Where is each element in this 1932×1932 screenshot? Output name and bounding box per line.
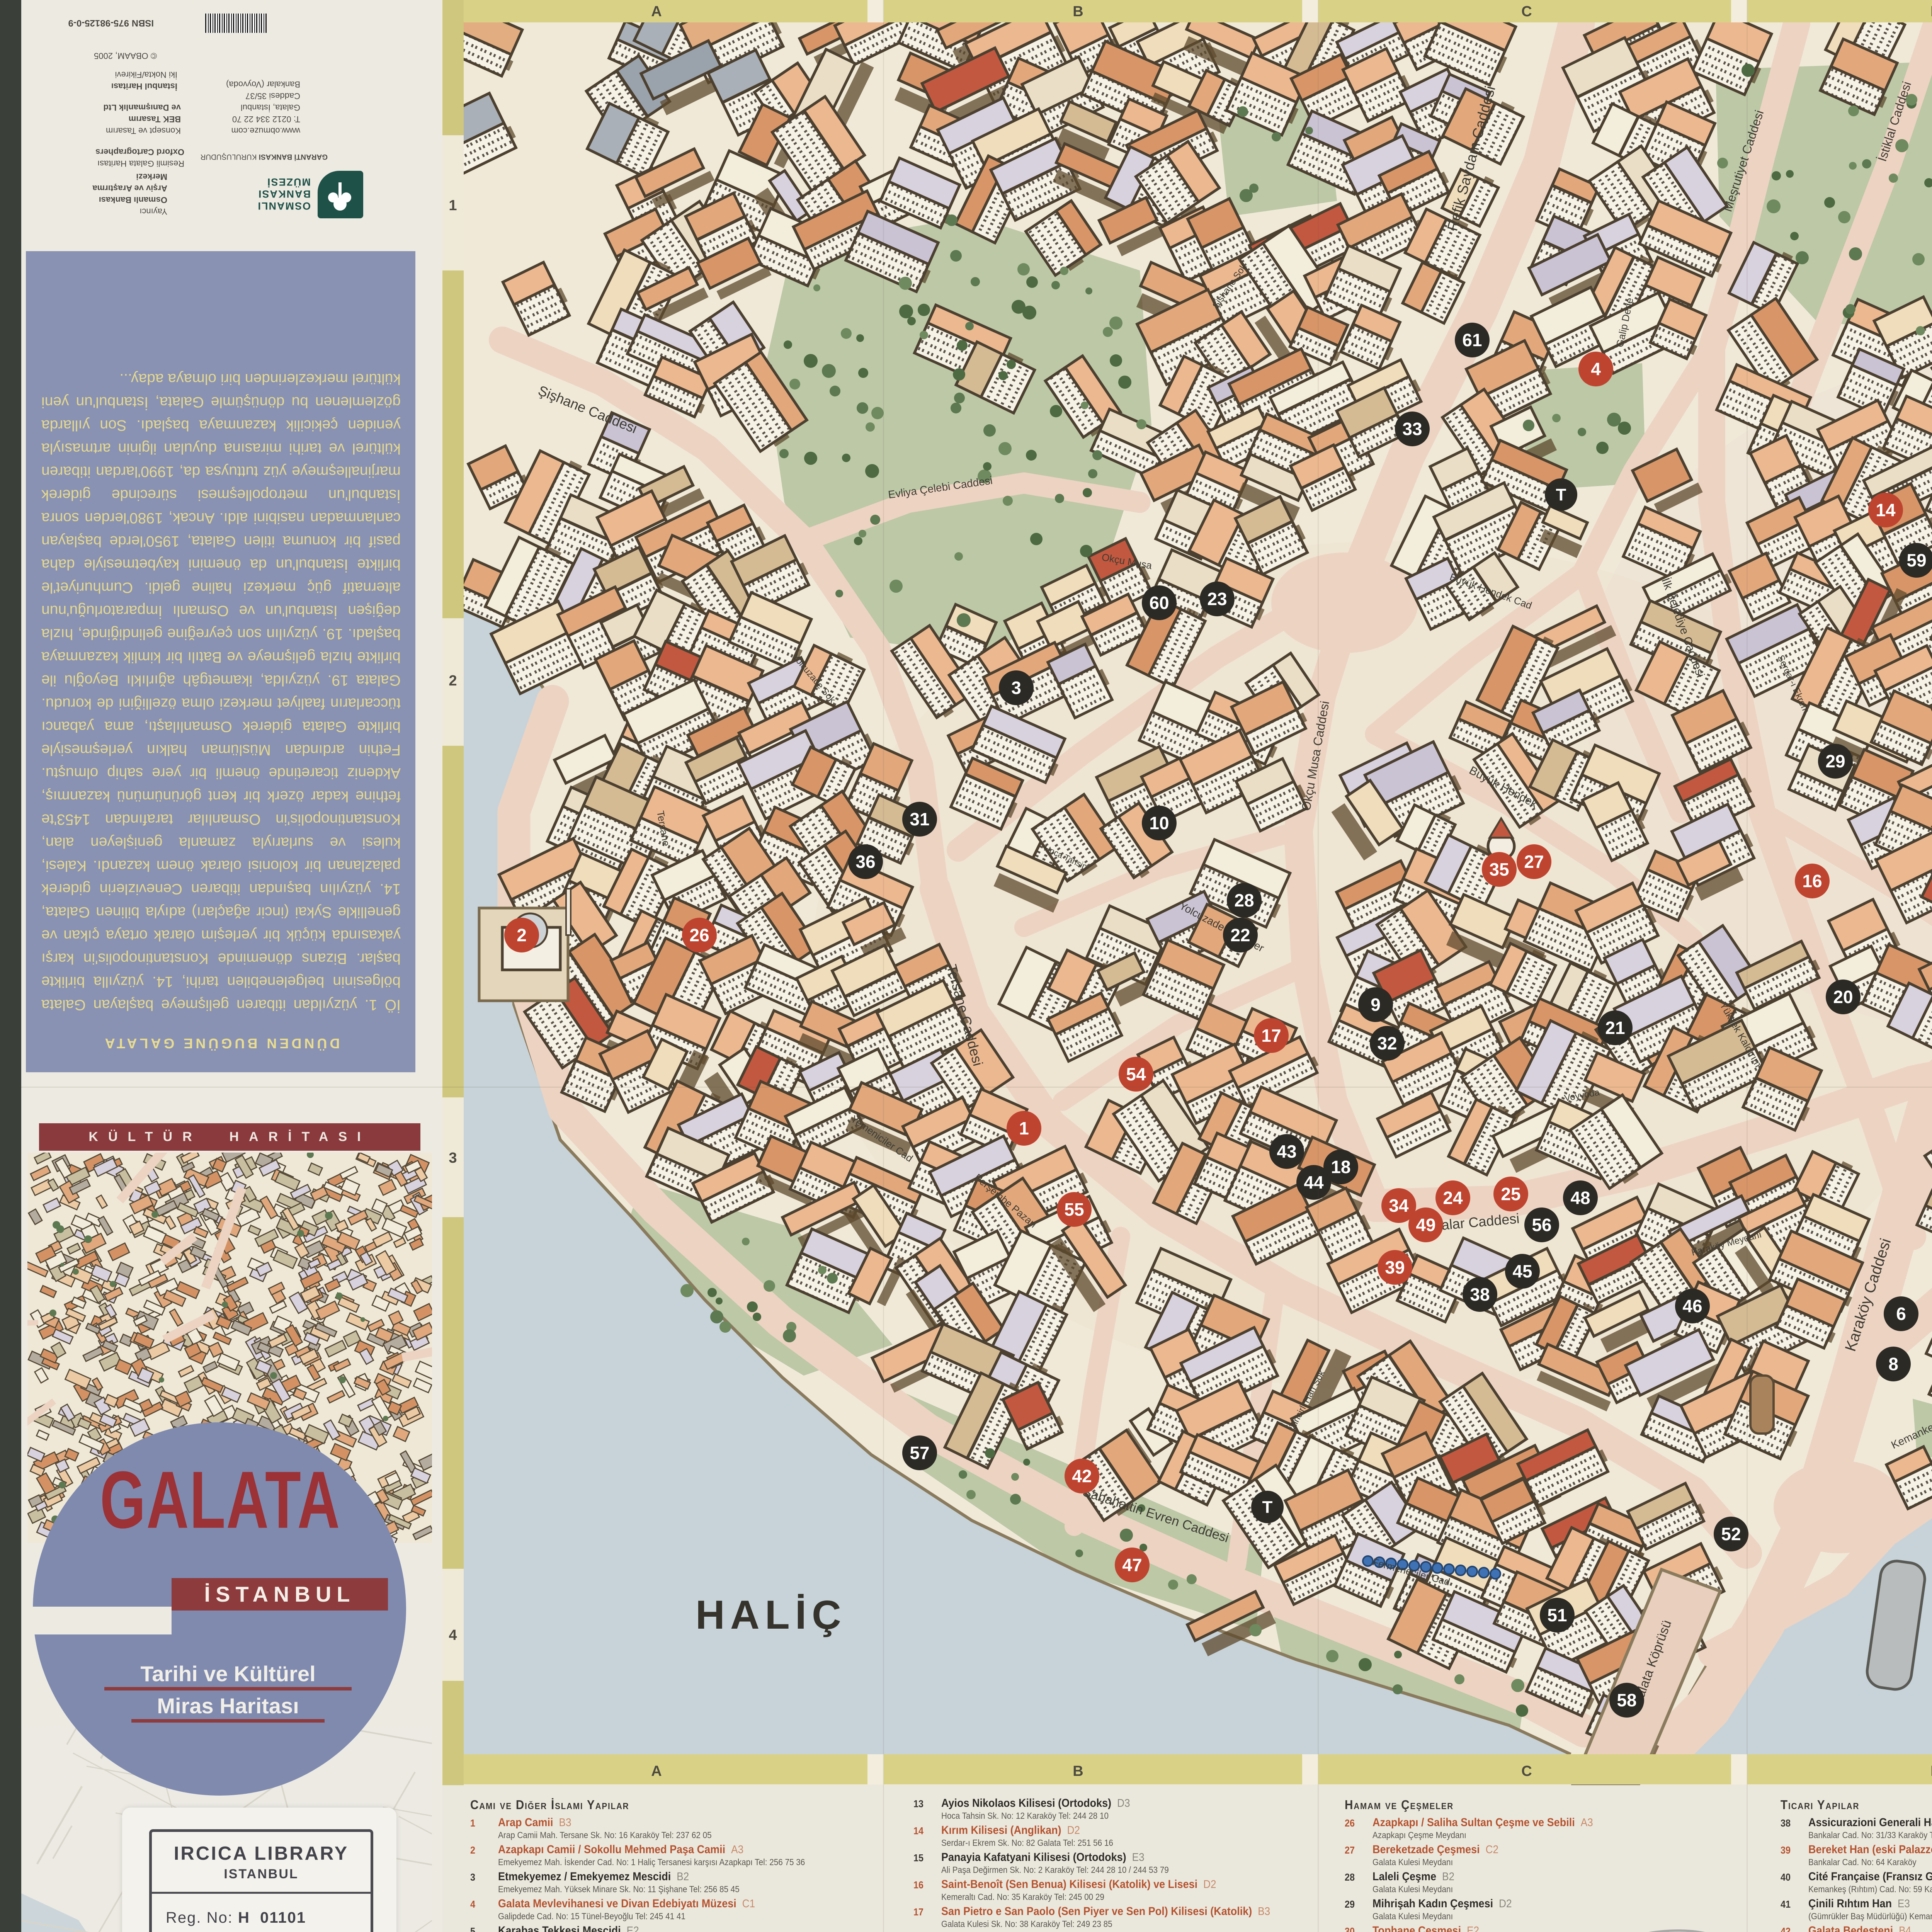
svg-text:C: C xyxy=(1521,1763,1532,1779)
svg-text:8: 8 xyxy=(1888,1354,1898,1374)
svg-text:38: 38 xyxy=(1470,1284,1490,1304)
svg-text:T: T xyxy=(1556,485,1566,504)
svg-text:21: 21 xyxy=(1605,1018,1625,1038)
svg-text:27: 27 xyxy=(1524,852,1544,872)
svg-text:54: 54 xyxy=(1126,1064,1146,1084)
svg-text:C: C xyxy=(1521,3,1532,20)
svg-text:10: 10 xyxy=(1149,813,1169,833)
svg-text:60: 60 xyxy=(1149,593,1169,613)
svg-text:61: 61 xyxy=(1462,330,1482,350)
svg-text:42: 42 xyxy=(1072,1466,1092,1486)
svg-text:56: 56 xyxy=(1532,1215,1551,1235)
svg-text:A: A xyxy=(651,3,662,20)
svg-text:25: 25 xyxy=(1501,1184,1520,1204)
svg-text:28: 28 xyxy=(1234,890,1254,910)
svg-text:51: 51 xyxy=(1547,1605,1567,1625)
svg-text:31: 31 xyxy=(910,809,929,829)
svg-text:32: 32 xyxy=(1377,1033,1397,1053)
svg-text:29: 29 xyxy=(1825,751,1845,771)
svg-text:HALİÇ: HALİÇ xyxy=(696,1592,847,1638)
svg-text:3: 3 xyxy=(449,1150,457,1166)
svg-text:59: 59 xyxy=(1906,550,1926,570)
svg-text:D: D xyxy=(1930,3,1932,20)
svg-text:46: 46 xyxy=(1682,1296,1702,1316)
svg-text:1: 1 xyxy=(1019,1118,1029,1138)
svg-text:B: B xyxy=(1073,3,1083,20)
svg-text:2: 2 xyxy=(517,925,527,945)
svg-text:55: 55 xyxy=(1064,1199,1084,1219)
svg-text:9: 9 xyxy=(1371,995,1381,1015)
svg-text:33: 33 xyxy=(1402,419,1422,439)
svg-text:20: 20 xyxy=(1833,987,1853,1007)
svg-text:57: 57 xyxy=(910,1443,929,1463)
svg-text:14: 14 xyxy=(1876,500,1896,520)
svg-text:49: 49 xyxy=(1416,1215,1435,1235)
svg-text:36: 36 xyxy=(855,852,875,872)
svg-text:44: 44 xyxy=(1304,1172,1324,1192)
svg-text:34: 34 xyxy=(1389,1196,1409,1216)
svg-text:2: 2 xyxy=(449,673,457,689)
svg-text:39: 39 xyxy=(1385,1257,1405,1277)
svg-text:45: 45 xyxy=(1512,1261,1532,1281)
svg-text:D: D xyxy=(1930,1763,1932,1779)
svg-text:T: T xyxy=(1262,1498,1273,1517)
svg-text:47: 47 xyxy=(1122,1555,1142,1575)
svg-text:18: 18 xyxy=(1331,1157,1350,1177)
svg-text:4: 4 xyxy=(449,1627,457,1643)
svg-text:22: 22 xyxy=(1230,925,1250,945)
svg-text:4: 4 xyxy=(1591,359,1601,379)
svg-text:23: 23 xyxy=(1207,589,1227,609)
svg-text:26: 26 xyxy=(689,925,709,945)
svg-text:6: 6 xyxy=(1896,1304,1906,1324)
svg-text:1: 1 xyxy=(449,197,457,214)
svg-text:24: 24 xyxy=(1443,1188,1463,1208)
svg-text:A: A xyxy=(651,1763,662,1779)
svg-text:3: 3 xyxy=(1011,678,1021,698)
svg-text:48: 48 xyxy=(1570,1188,1590,1208)
svg-text:17: 17 xyxy=(1261,1026,1281,1046)
svg-text:B: B xyxy=(1073,1763,1083,1779)
svg-text:52: 52 xyxy=(1721,1524,1741,1544)
svg-text:43: 43 xyxy=(1277,1141,1296,1162)
svg-text:58: 58 xyxy=(1617,1690,1636,1710)
svg-text:35: 35 xyxy=(1489,859,1509,879)
svg-text:16: 16 xyxy=(1802,871,1822,891)
